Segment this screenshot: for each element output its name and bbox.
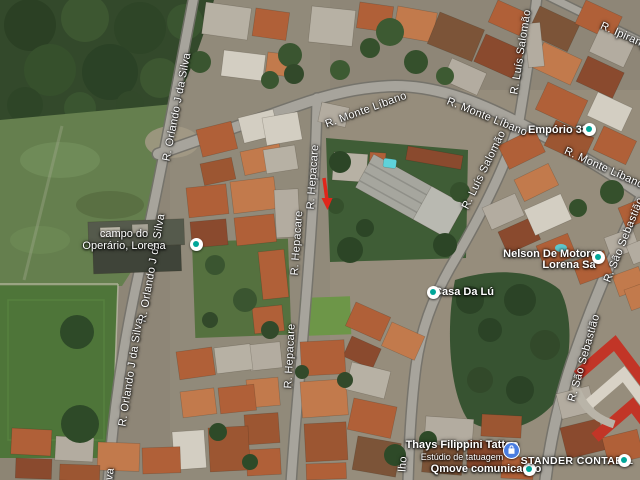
satellite-map-viewport[interactable]: R. Monte Líbano R. Monte Líbano R. Monte… bbox=[0, 0, 640, 480]
poi-label-thays[interactable]: Thays Filippini Tattoo Estúdio de tatuag… bbox=[406, 439, 519, 463]
poi-thays-line1: Thays Filippini Tattoo bbox=[406, 439, 519, 451]
poi-marker-thays-shopping-bag-icon[interactable] bbox=[503, 442, 520, 459]
poi-label-nelson-line2[interactable]: Lorena Sa bbox=[542, 259, 595, 271]
poi-marker-campo[interactable] bbox=[190, 238, 203, 251]
poi-label-stander[interactable]: STANDER CONTABIL bbox=[521, 455, 634, 467]
poi-marker-emporio[interactable] bbox=[583, 123, 596, 136]
poi-label-casa-da-lu[interactable]: Casa Da Lú bbox=[434, 286, 494, 298]
street-label-orlando-fragment: va bbox=[103, 467, 117, 480]
poi-label-emporio[interactable]: Empório 38 bbox=[528, 124, 588, 136]
shopping-bag-icon bbox=[507, 445, 516, 455]
poi-marker-nelson[interactable] bbox=[592, 251, 605, 264]
poi-marker-casa-da-lu[interactable] bbox=[427, 286, 440, 299]
poi-campo-line2: Operário, Lorena bbox=[82, 240, 165, 252]
swimming-pool bbox=[383, 158, 397, 169]
poi-label-campo[interactable]: campo do Operário, Lorena bbox=[82, 228, 165, 252]
poi-marker-stander[interactable] bbox=[618, 454, 631, 467]
poi-campo-line1: campo do bbox=[82, 228, 165, 240]
poi-thays-line2: Estúdio de tatuagem bbox=[406, 451, 519, 463]
